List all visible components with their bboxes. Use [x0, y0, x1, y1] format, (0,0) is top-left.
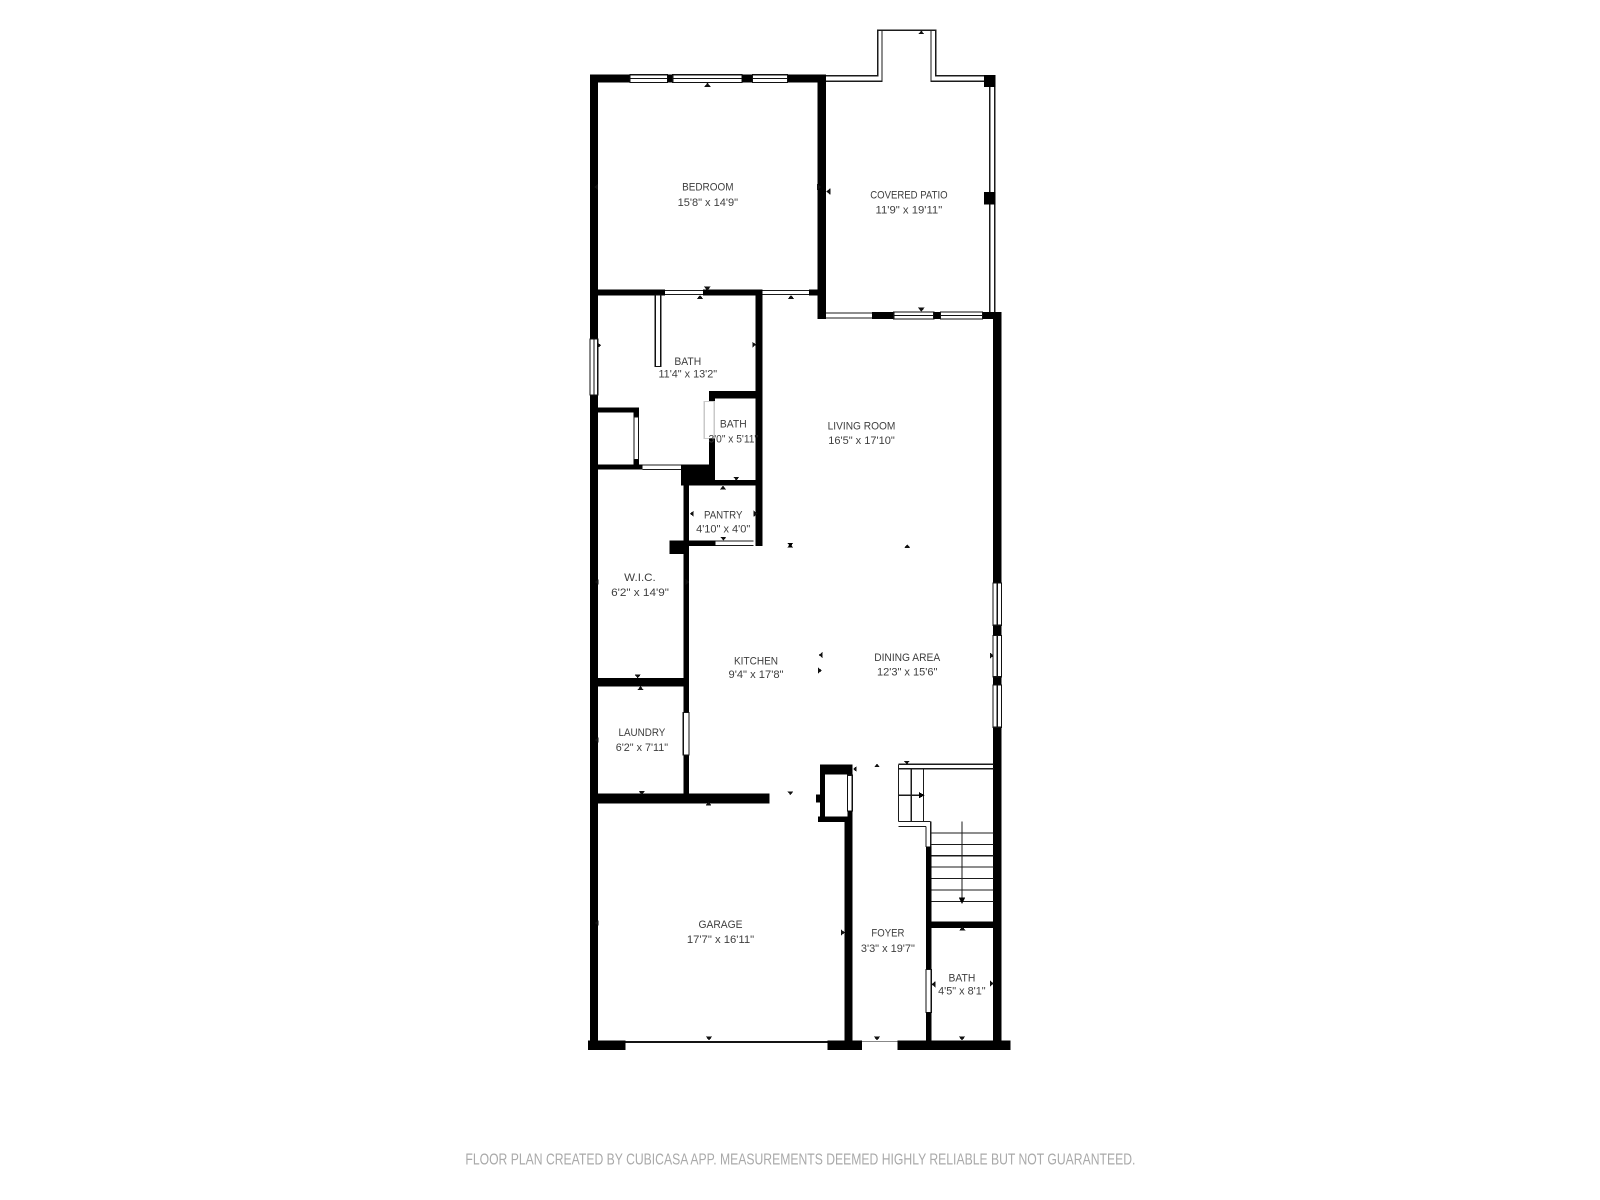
svg-text:17'7" x 16'11": 17'7" x 16'11" [687, 934, 754, 946]
svg-text:9'4" x 17'8": 9'4" x 17'8" [729, 669, 784, 681]
svg-text:LAUNDRY: LAUNDRY [619, 727, 666, 739]
svg-text:KITCHEN: KITCHEN [734, 656, 778, 668]
svg-text:FOYER: FOYER [871, 928, 904, 940]
svg-text:COVERED PATIO: COVERED PATIO [870, 190, 948, 202]
svg-text:LIVING ROOM: LIVING ROOM [828, 420, 896, 432]
svg-text:15'8" x 14'9": 15'8" x 14'9" [678, 197, 738, 209]
svg-text:FLOOR PLAN CREATED BY CUBICASA: FLOOR PLAN CREATED BY CUBICASA APP. MEAS… [465, 1151, 1135, 1168]
svg-text:4'5" x 8'1": 4'5" x 8'1" [938, 986, 986, 998]
svg-text:BEDROOM: BEDROOM [682, 181, 733, 193]
svg-text:BATH: BATH [720, 419, 747, 431]
svg-text:BATH: BATH [949, 973, 976, 985]
svg-text:16'5" x 17'10": 16'5" x 17'10" [828, 435, 895, 447]
svg-text:W.I.C.: W.I.C. [624, 572, 656, 584]
svg-text:GARAGE: GARAGE [699, 919, 743, 931]
svg-text:12'3" x 15'6": 12'3" x 15'6" [877, 667, 938, 679]
svg-text:11'4" x 13'2": 11'4" x 13'2" [658, 368, 717, 380]
svg-text:BATH: BATH [674, 356, 701, 368]
svg-text:6'2" x 7'11": 6'2" x 7'11" [616, 742, 668, 754]
svg-text:PANTRY: PANTRY [704, 510, 743, 522]
svg-text:4'10" x 4'0": 4'10" x 4'0" [696, 524, 750, 536]
svg-text:DINING AREA: DINING AREA [874, 652, 940, 664]
svg-text:3'3" x 19'7": 3'3" x 19'7" [861, 943, 915, 955]
svg-text:3'0" x 5'11": 3'0" x 5'11" [709, 433, 759, 445]
svg-text:6'2" x 14'9": 6'2" x 14'9" [611, 587, 669, 599]
svg-text:11'9" x 19'11": 11'9" x 19'11" [876, 204, 943, 216]
